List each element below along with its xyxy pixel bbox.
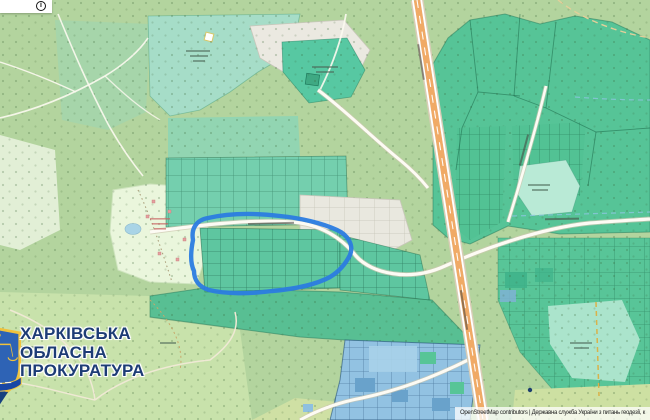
pond [125, 224, 141, 235]
info-bar: i [0, 0, 52, 13]
map-canvas[interactable] [0, 0, 650, 420]
attribution-text[interactable]: OpenStreetMap contributors | Державна сл… [460, 410, 645, 416]
info-icon[interactable]: i [36, 1, 46, 11]
map-screenshot: i ХАРКІВСЬКА ОБЛАСНА ПРОКУРАТУРА OpenStr… [0, 0, 650, 420]
map-attribution[interactable]: OpenStreetMap contributors | Державна сл… [455, 407, 650, 420]
